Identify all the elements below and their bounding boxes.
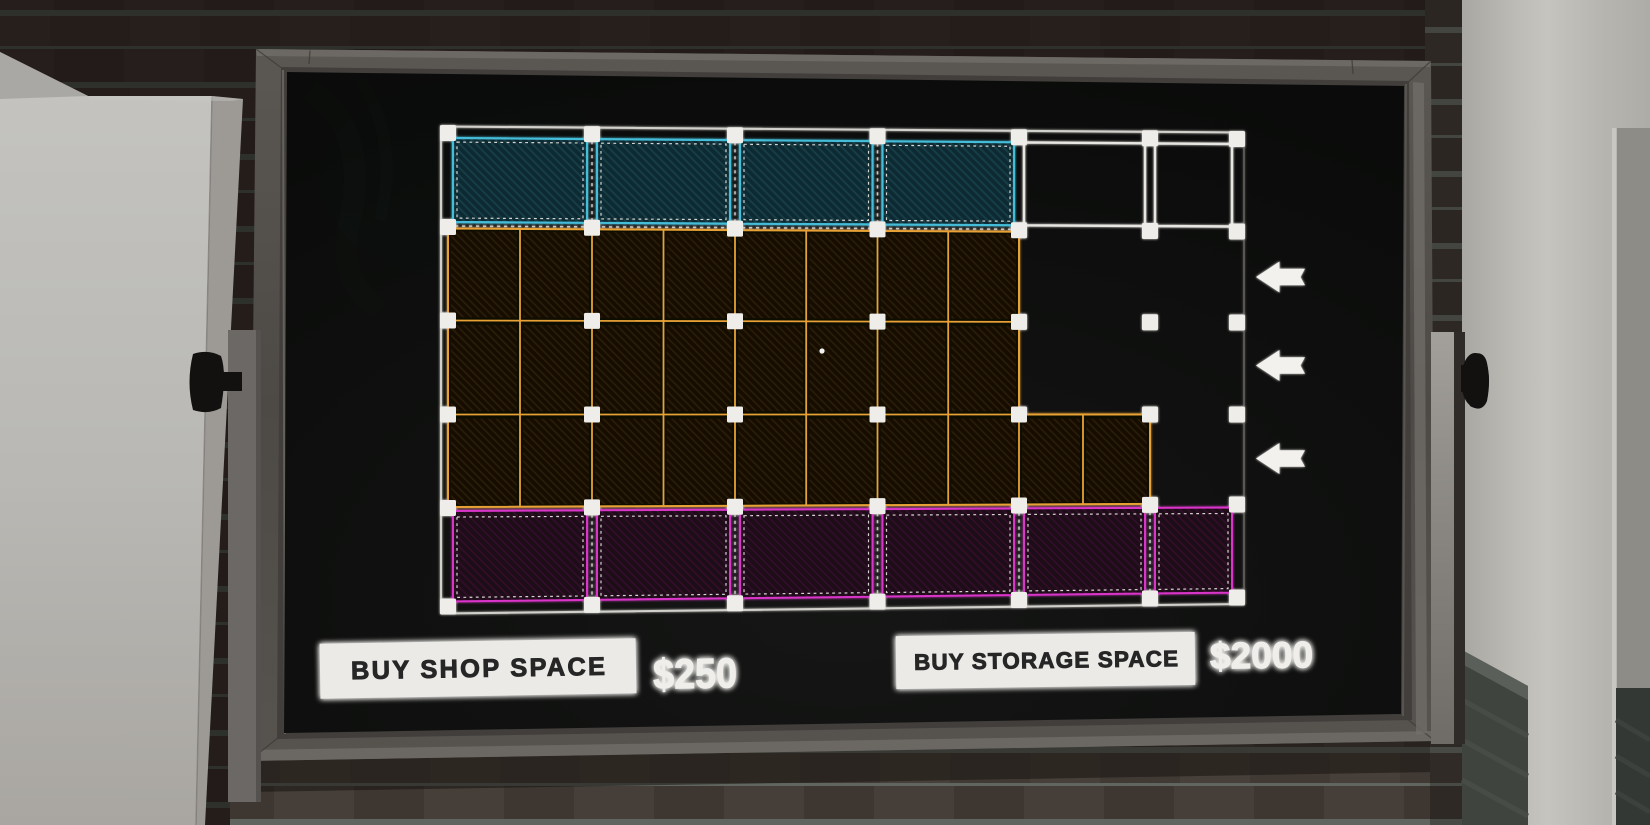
svg-text:$2000: $2000: [1210, 634, 1314, 676]
svg-text:$250: $250: [653, 649, 738, 697]
svg-text:BUY STORAGE SPACE: BUY STORAGE SPACE: [914, 646, 1178, 675]
svg-text:BUY SHOP SPACE: BUY SHOP SPACE: [351, 653, 605, 685]
